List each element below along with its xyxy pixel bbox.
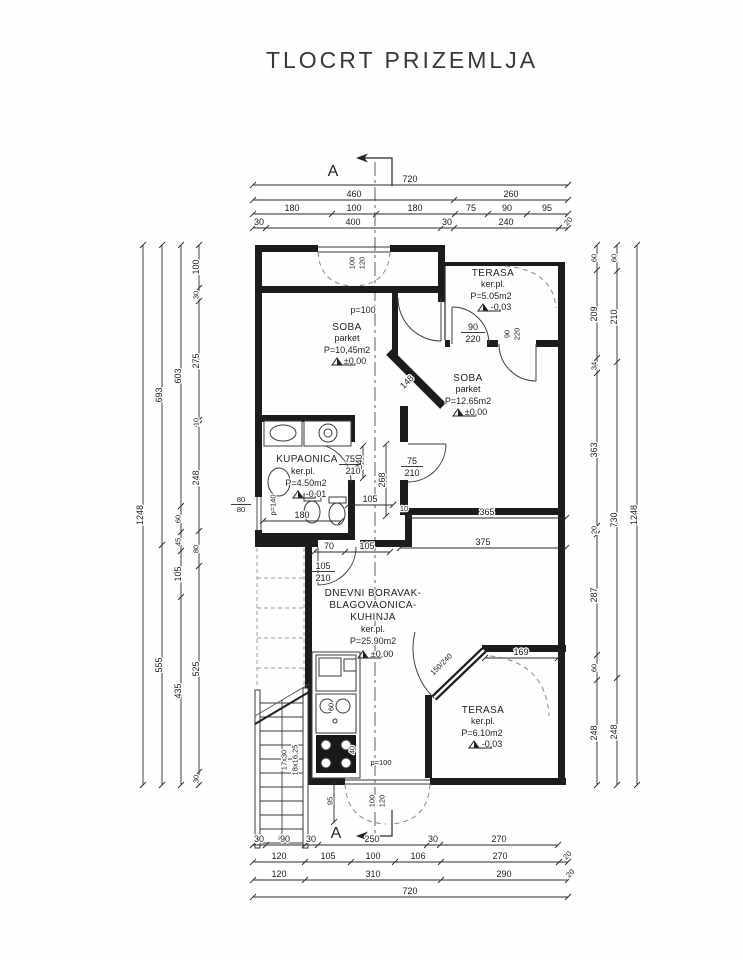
svg-text:120: 120 bbox=[378, 795, 387, 808]
dim-label: 100 bbox=[365, 851, 380, 861]
dim-label: 40 bbox=[348, 746, 357, 754]
dim-label: 248 bbox=[191, 470, 201, 485]
room-label-soba1: p=100 SOBA parket P=10,45m2 ±0,00 bbox=[324, 305, 376, 366]
svg-text:P=5.05m2: P=5.05m2 bbox=[470, 291, 511, 301]
floor-plan-page: TLOCRT PRIZEMLJA A A bbox=[0, 0, 743, 960]
svg-text:105: 105 bbox=[315, 561, 330, 571]
section-marker-top: A bbox=[328, 154, 392, 187]
dim-label: 20 bbox=[561, 849, 573, 861]
dim-label: 70 bbox=[324, 541, 334, 551]
dim-label: 180 bbox=[294, 510, 309, 520]
svg-text:220: 220 bbox=[465, 334, 480, 344]
floor-plan-drawing: TLOCRT PRIZEMLJA A A bbox=[0, 0, 743, 960]
dim-label: 100 bbox=[191, 259, 201, 274]
dim-label: 555 bbox=[154, 657, 164, 672]
dim-label: 20 bbox=[590, 526, 599, 534]
dim-label: 270 bbox=[492, 851, 507, 861]
dim-label: 180 bbox=[407, 203, 422, 213]
dim-label: 105 bbox=[320, 851, 335, 861]
dim-label: 169 bbox=[513, 647, 528, 657]
dim-label: 720 bbox=[402, 174, 417, 184]
dim-label: 30 bbox=[442, 217, 452, 227]
dim-label: 120 bbox=[271, 851, 286, 861]
kitchen-sink bbox=[316, 694, 356, 733]
svg-text:TERASA: TERASA bbox=[472, 268, 514, 279]
dim-label: 60 bbox=[174, 515, 183, 523]
dim-label: 90 bbox=[502, 203, 512, 213]
dim-label: 240 bbox=[498, 217, 513, 227]
window-bottom bbox=[345, 780, 430, 824]
dim-label: 30 bbox=[192, 775, 201, 783]
door-terasa1-size: 90 220 bbox=[503, 328, 522, 341]
svg-text:parket: parket bbox=[334, 333, 360, 343]
dim-label: 60 bbox=[610, 254, 619, 262]
dim-label: 375 bbox=[475, 537, 490, 547]
svg-text:P=25.90m2: P=25.90m2 bbox=[350, 636, 396, 646]
page-title: TLOCRT PRIZEMLJA bbox=[266, 47, 538, 73]
dim-label: 60 bbox=[327, 703, 336, 711]
dim-label: 30 bbox=[306, 834, 316, 844]
parapet-kupaonica-label: p=140 bbox=[269, 494, 278, 515]
svg-text:SOBA: SOBA bbox=[332, 322, 361, 333]
section-label-bottom: A bbox=[331, 825, 342, 842]
dim-label: 10 bbox=[192, 418, 201, 426]
svg-text:90: 90 bbox=[468, 322, 478, 332]
window-top-size: 100 120 bbox=[348, 257, 367, 270]
dim-right-1 bbox=[594, 242, 600, 788]
dim-left-4 bbox=[196, 242, 202, 788]
svg-text:220: 220 bbox=[513, 328, 522, 341]
svg-text:p=100: p=100 bbox=[350, 305, 375, 315]
stairs-rise-label: 18x16,25 bbox=[291, 745, 300, 776]
stairs: 17x30 18x16,25 bbox=[255, 548, 309, 848]
svg-text:80: 80 bbox=[237, 505, 245, 514]
dim-label: 248 bbox=[589, 725, 599, 740]
dim-top-4 bbox=[250, 225, 571, 231]
dim-label: 1248 bbox=[629, 505, 639, 525]
svg-text:ker.pl.: ker.pl. bbox=[471, 716, 495, 726]
dim-label: 1248 bbox=[135, 505, 145, 525]
dim-label: 20 bbox=[564, 867, 576, 879]
svg-text:75: 75 bbox=[345, 454, 355, 464]
dim-label: 210 bbox=[609, 309, 619, 324]
dim-label: 30 bbox=[428, 834, 438, 844]
dim-label: 45 bbox=[174, 538, 183, 546]
dim-label: 270 bbox=[491, 834, 506, 844]
room-label-terasa2: TERASA ker.pl. P=6.10m2 -0,03 bbox=[461, 705, 504, 749]
svg-text:ker.pl.: ker.pl. bbox=[481, 279, 505, 289]
svg-text:SOBA: SOBA bbox=[453, 373, 482, 384]
svg-text:100: 100 bbox=[368, 795, 377, 808]
dim-label: 60 bbox=[590, 254, 599, 262]
stairs-run-label: 17x30 bbox=[280, 750, 289, 770]
svg-text:P=12.65m2: P=12.65m2 bbox=[445, 396, 491, 406]
svg-text:210: 210 bbox=[345, 466, 360, 476]
dim-label: 603 bbox=[173, 368, 183, 383]
dim-label: 287 bbox=[589, 587, 599, 602]
dim-label: 180 bbox=[284, 203, 299, 213]
dim-label: 720 bbox=[402, 886, 417, 896]
svg-text:90: 90 bbox=[503, 330, 512, 338]
dim-label: 60 bbox=[590, 664, 599, 672]
dim-label: 209 bbox=[589, 306, 599, 321]
dim-label: 120 bbox=[271, 869, 286, 879]
dim-label: 30 bbox=[254, 217, 264, 227]
dim-label: 693 bbox=[154, 387, 164, 402]
door-soba2-size: 75 210 bbox=[401, 456, 423, 478]
dim-label: 34 bbox=[590, 362, 599, 370]
svg-text:P=6.10m2: P=6.10m2 bbox=[461, 728, 502, 738]
room-label-soba2: SOBA parket P=12.65m2 ±0,00 bbox=[445, 373, 491, 417]
bidet-tank bbox=[329, 497, 346, 503]
svg-text:P=4.50m2: P=4.50m2 bbox=[285, 478, 326, 488]
dim-label: 310 bbox=[365, 869, 380, 879]
section-marker-bottom: A bbox=[331, 810, 392, 842]
door-hall-size: 105 210 bbox=[311, 561, 335, 583]
section-label-top: A bbox=[328, 163, 339, 180]
dim-label: 100 bbox=[346, 203, 361, 213]
dim-label: 525 bbox=[191, 661, 201, 676]
dim-label: 365 bbox=[479, 507, 494, 517]
dim-label: 105 bbox=[362, 494, 377, 504]
dim-label: 95 bbox=[326, 797, 335, 805]
dim-label: 363 bbox=[589, 442, 599, 457]
dim-bottom-3 bbox=[250, 877, 571, 883]
bidet bbox=[329, 503, 345, 525]
dim-label: 30 bbox=[254, 834, 264, 844]
dim-label: 248 bbox=[609, 724, 619, 739]
dim-label: 435 bbox=[173, 683, 183, 698]
dim-label: 250 bbox=[364, 834, 379, 844]
dim-label: 30 bbox=[192, 291, 201, 299]
dim-label: 460 bbox=[346, 189, 361, 199]
dim-left-2 bbox=[159, 242, 165, 788]
room-label-terasa1: TERASA ker.pl. P=5.05m2 -0,03 bbox=[470, 268, 514, 312]
door-terasa2-size: 150/240 bbox=[428, 651, 454, 677]
dim-label: 260 bbox=[503, 189, 518, 199]
svg-text:P=10,45m2: P=10,45m2 bbox=[324, 345, 370, 355]
window-bathroom bbox=[257, 497, 261, 530]
dim-label: 105 bbox=[173, 566, 183, 581]
svg-text:BLAGOVAONICA-: BLAGOVAONICA- bbox=[329, 600, 416, 611]
dim-label: 730 bbox=[609, 512, 619, 527]
svg-text:parket: parket bbox=[455, 384, 481, 394]
dim-label: 275 bbox=[191, 353, 201, 368]
dim-label: 290 bbox=[496, 869, 511, 879]
dim-label: 80 bbox=[192, 545, 201, 553]
dim-label: 90 bbox=[280, 834, 290, 844]
dim-label: 20 bbox=[562, 215, 574, 227]
dim-label: 95 bbox=[542, 203, 552, 213]
svg-text:75: 75 bbox=[407, 456, 417, 466]
svg-text:100: 100 bbox=[348, 257, 357, 270]
svg-text:210: 210 bbox=[404, 468, 419, 478]
dim-label: 400 bbox=[345, 217, 360, 227]
svg-text:KUPAONICA: KUPAONICA bbox=[276, 454, 338, 465]
svg-text:DNEVNI BORAVAK-: DNEVNI BORAVAK- bbox=[325, 588, 422, 599]
parapet-kitchen-label: p=100 bbox=[370, 758, 391, 767]
door-soba1-size: 90 220 bbox=[461, 322, 485, 344]
kitchen-fixtures bbox=[312, 652, 360, 778]
svg-text:210: 210 bbox=[315, 573, 330, 583]
svg-text:KUHINJA: KUHINJA bbox=[350, 612, 396, 623]
dim-label: 75 bbox=[466, 203, 476, 213]
dim-label: 105 bbox=[359, 541, 374, 551]
svg-text:ker.pl.: ker.pl. bbox=[291, 466, 315, 476]
room-label-dnevni: DNEVNI BORAVAK- BLAGOVAONICA- KUHINJA ke… bbox=[325, 588, 422, 659]
window-bottom-size: 100 120 bbox=[368, 795, 387, 808]
dim-label: 106 bbox=[410, 851, 425, 861]
french-door-terrace2 bbox=[413, 632, 484, 698]
window-kupaonica-size: 80 80 bbox=[231, 495, 251, 514]
svg-text:120: 120 bbox=[358, 257, 367, 270]
svg-text:80: 80 bbox=[237, 495, 245, 504]
dim-label: 268 bbox=[377, 472, 387, 487]
svg-text:ker.pl.: ker.pl. bbox=[361, 624, 385, 634]
svg-text:TERASA: TERASA bbox=[462, 705, 504, 716]
dim-label: 10 bbox=[400, 504, 408, 513]
